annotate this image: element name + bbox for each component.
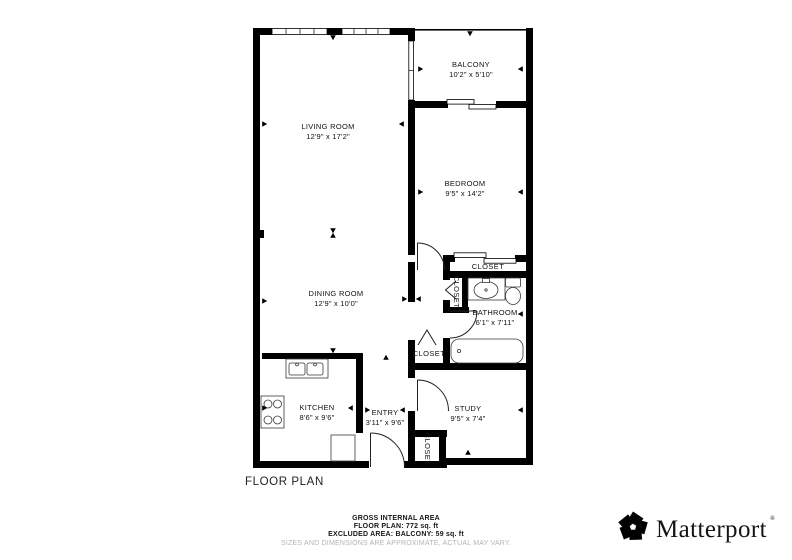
wall: [260, 230, 264, 238]
plan-title: FLOOR PLAN: [245, 476, 324, 488]
area-disclaimer: SIZES AND DIMENSIONS ARE APPROXIMATE, AC…: [281, 540, 511, 547]
dimension-arrow: [262, 298, 267, 304]
balcony-label: BALCONY: [452, 60, 490, 69]
dimension-arrow: [518, 66, 523, 72]
wall: [408, 363, 533, 370]
dimension-arrow: [348, 405, 353, 411]
living-room-dims: 12'9" x 17'2": [306, 132, 350, 141]
wall: [253, 461, 369, 468]
wall: [515, 255, 533, 262]
dining-room-label: DINING ROOM: [309, 289, 364, 298]
bathroom-dims: 6'1" x 7'11": [476, 318, 515, 327]
wall: [408, 28, 415, 41]
hall-closet-bifold-door: [418, 330, 436, 345]
window: [272, 29, 327, 35]
wall: [440, 458, 533, 465]
area-heading: GROSS INTERNAL AREA: [352, 515, 440, 522]
toilet: [506, 278, 521, 305]
living-room-label: LIVING ROOM: [301, 122, 354, 131]
wall: [356, 353, 363, 433]
bedroom-dims: 9'5" x 14'2": [445, 189, 484, 198]
wall: [443, 255, 455, 262]
area-excluded: EXCLUDED AREA: BALCONY: 59 sq. ft: [328, 531, 464, 538]
entry-closet-label: CLOSET: [423, 433, 432, 465]
kitchen-dims: 8'6" x 9'6": [300, 413, 335, 422]
wall: [253, 28, 260, 468]
matterport-wordmark: Matterport: [656, 516, 767, 543]
wall: [262, 353, 363, 359]
stove: [261, 396, 284, 428]
registered-mark: ®: [770, 515, 775, 522]
wall: [462, 277, 468, 307]
bedroom-closet-label: CLOSET: [472, 262, 504, 271]
matterport-logo: Matterport ®: [615, 512, 775, 546]
wall: [408, 100, 415, 255]
entry-door: [371, 433, 405, 467]
dimension-arrow: [416, 296, 421, 302]
balcony-rail: [415, 29, 533, 31]
sliding-door: [469, 104, 496, 109]
wall: [327, 28, 342, 35]
dimension-arrow: [330, 35, 336, 40]
wall: [408, 340, 415, 378]
wall: [526, 28, 533, 465]
dimension-arrow: [467, 31, 473, 36]
dimension-arrow: [465, 450, 471, 455]
area-summary: GROSS INTERNAL AREA FLOOR PLAN: 772 sq. …: [281, 515, 511, 547]
floor-plan-page: BALCONY 10'2" x 5'10" LIVING ROOM 12'9" …: [0, 0, 792, 560]
dimension-arrow: [330, 348, 336, 353]
dimension-arrows: [262, 31, 523, 455]
dimension-arrow: [383, 355, 389, 360]
entry-label: ENTRY: [372, 408, 399, 417]
sliding-door: [454, 253, 486, 258]
dining-room-dims: 12'9" x 10'0": [314, 299, 358, 308]
entry-dims: 3'11" x 9'6": [366, 418, 405, 427]
bedroom-door: [418, 243, 445, 270]
dimension-arrow: [402, 296, 407, 302]
dimension-arrow: [262, 121, 267, 127]
kitchen-sink: [286, 359, 328, 378]
dimension-arrow: [365, 407, 370, 413]
dimension-arrow: [418, 189, 423, 195]
study-dims: 9'5" x 7'4": [451, 414, 486, 423]
wall: [253, 28, 272, 35]
wall: [408, 262, 415, 302]
dimension-arrow: [330, 233, 336, 238]
wall: [408, 101, 448, 108]
dimension-arrow: [518, 189, 523, 195]
sliding-door: [447, 100, 474, 105]
walls: [253, 28, 533, 468]
dimension-arrow: [418, 66, 423, 72]
balcony-dims: 10'2" x 5'10": [449, 70, 493, 79]
dimension-arrow: [400, 407, 405, 413]
matterport-pinwheel-icon: [615, 512, 651, 546]
bedroom-label: BEDROOM: [445, 179, 486, 188]
dimension-arrow: [399, 121, 404, 127]
floor-plan-drawing: BALCONY 10'2" x 5'10" LIVING ROOM 12'9" …: [0, 0, 792, 560]
bathroom-sink: [468, 278, 505, 300]
wall: [496, 101, 533, 108]
dimension-arrow: [518, 311, 523, 317]
bathroom-label: BATHROOM: [472, 308, 517, 317]
bathtub: [451, 339, 523, 363]
kitchen-counter: [331, 435, 355, 461]
dimension-arrow: [330, 228, 336, 233]
study-door: [418, 380, 449, 411]
linen-closet-label: CLOSET: [452, 276, 461, 308]
kitchen-label: KITCHEN: [299, 403, 334, 412]
hall-closet-label: CLOSET: [413, 349, 445, 358]
area-floor-plan: FLOOR PLAN: 772 sq. ft: [354, 523, 439, 530]
dimension-arrow: [518, 407, 523, 413]
study-label: STUDY: [455, 404, 482, 413]
